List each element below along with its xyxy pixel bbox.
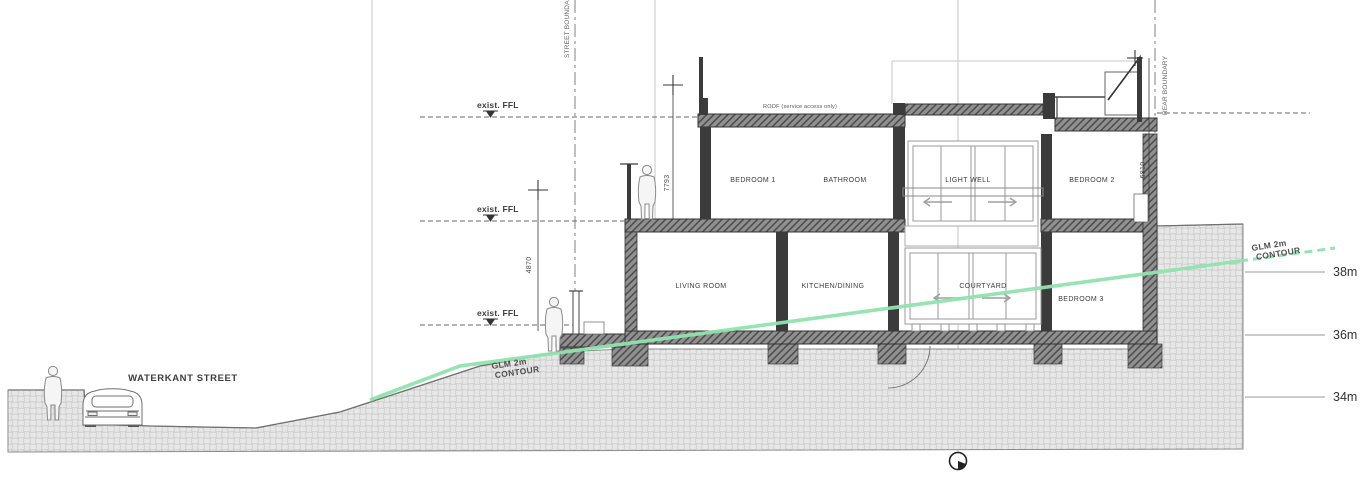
ffl-label-ground: exist. FFL: [477, 308, 519, 318]
room-courtyard: COURTYARD: [959, 283, 1006, 290]
ffl-label-roof: exist. FFL: [477, 100, 519, 110]
terrace-railing: [627, 164, 631, 219]
room-lightwell: LIGHT WELL: [945, 177, 991, 184]
room-bedroom3: BEDROOM 3: [1058, 296, 1104, 303]
wall-left-exterior: [625, 232, 637, 331]
dim-6810: 6810: [1140, 162, 1147, 179]
street-name-label: WATERKANT STREET: [128, 373, 238, 384]
room-kitchendining: KITCHEN/DINING: [802, 283, 865, 290]
room-bedroom2: BEDROOM 2: [1069, 177, 1115, 184]
elevation-36m: 36m: [1333, 328, 1357, 342]
section-drawing: STREET BOUNDARY REAR BOUNDARY 38m 36m 34…: [0, 0, 1363, 483]
rear-boundary-label: REAR BOUNDARY: [1162, 55, 1169, 115]
car-icon: [83, 389, 142, 427]
room-bedroom1: BEDROOM 1: [730, 177, 776, 184]
roof-slab-left: [698, 114, 905, 127]
room-livingroom: LIVING ROOM: [675, 283, 726, 290]
stair-bulkhead: [1105, 72, 1138, 115]
dim-4870: 4870: [526, 257, 533, 274]
first-floor-slab-left: [625, 219, 905, 232]
section-marker: [950, 453, 967, 470]
entry-railing: [573, 291, 579, 334]
elevation-38m: 38m: [1333, 265, 1357, 279]
elevation-34m: 34m: [1333, 390, 1357, 404]
section-drawing-canvas: STREET BOUNDARY REAR BOUNDARY 38m 36m 34…: [0, 0, 1363, 483]
entry-step: [584, 322, 604, 334]
dim-7793: 7793: [664, 175, 671, 192]
street-boundary-label: STREET BOUNDARY: [564, 0, 571, 58]
roof-label: ROOF (service access only): [763, 104, 837, 110]
room-bathroom: BATHROOM: [823, 177, 866, 184]
rear-window: [1134, 194, 1148, 222]
ffl-label-first: exist. FFL: [477, 204, 519, 214]
lightwell-roof-beam: [905, 104, 1043, 115]
